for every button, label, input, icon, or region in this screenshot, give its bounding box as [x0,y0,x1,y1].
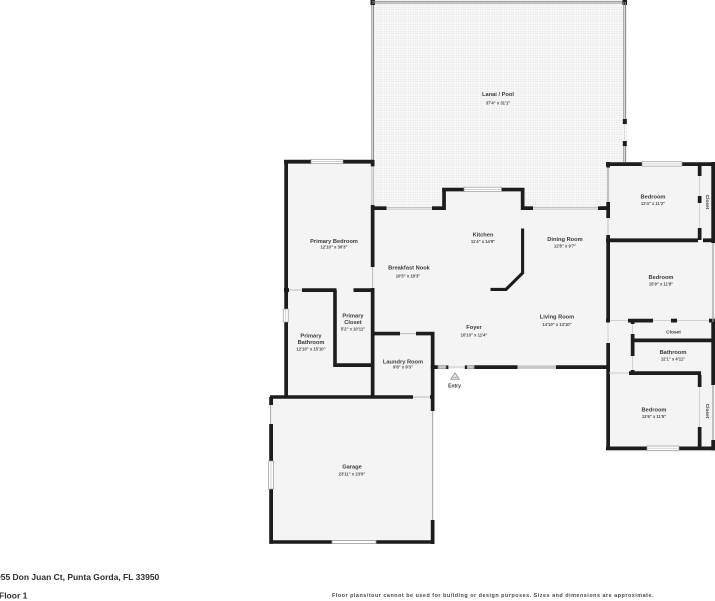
svg-text:Closet: Closet [704,404,710,419]
svg-text:Breakfast Nook: Breakfast Nook [388,266,431,272]
svg-text:Primary: Primary [300,334,322,340]
svg-text:955 Don Juan Ct, Punta Gorda,: 955 Don Juan Ct, Punta Gorda, FL 33950 [0,572,160,582]
svg-text:14'10" x 13'10": 14'10" x 13'10" [542,322,571,327]
svg-text:9'8" x 9'3": 9'8" x 9'3" [393,365,413,370]
svg-text:10'5" x 18'3": 10'5" x 18'3" [396,274,421,279]
svg-text:Bathroom: Bathroom [660,350,687,356]
svg-text:Garage: Garage [342,465,362,471]
svg-text:Floor 1: Floor 1 [0,591,28,601]
svg-text:23'11" x 23'9": 23'11" x 23'9" [339,472,366,477]
svg-text:15'9" x 11'8": 15'9" x 11'8" [649,281,673,286]
svg-text:Closet: Closet [666,330,681,336]
svg-text:5'2" x 10'11": 5'2" x 10'11" [341,327,365,332]
svg-text:Bedroom: Bedroom [641,195,666,201]
svg-text:Closet: Closet [344,320,361,326]
svg-text:Bedroom: Bedroom [642,408,667,414]
svg-text:Entry: Entry [448,384,461,390]
svg-text:Living Room: Living Room [540,315,574,321]
svg-text:12'4" x 11'2": 12'4" x 11'2" [641,201,665,206]
svg-text:13'6" x 11'5": 13'6" x 11'5" [642,414,666,419]
svg-text:Floor plans/tour cannot be use: Floor plans/tour cannot be used for buil… [332,593,654,599]
svg-text:12'10" x 15'10": 12'10" x 15'10" [296,347,325,352]
svg-text:Foyer: Foyer [466,325,482,331]
svg-text:Kitchen: Kitchen [473,233,494,239]
svg-text:37'4" x 31'1": 37'4" x 31'1" [486,101,511,106]
svg-text:11'4" x 14'9": 11'4" x 14'9" [471,239,495,244]
svg-text:Dining Room: Dining Room [547,237,582,243]
svg-text:Lanai / Pool: Lanai / Pool [482,92,514,98]
svg-text:12'1" x 4'11": 12'1" x 4'11" [661,357,685,362]
svg-text:Bathroom: Bathroom [298,340,325,346]
svg-text:12'10" x 30'3": 12'10" x 30'3" [321,245,348,250]
svg-text:Bedroom: Bedroom [649,275,674,281]
svg-text:10'10" x 11'4": 10'10" x 11'4" [461,333,488,338]
svg-text:12'8" x 9'7": 12'8" x 9'7" [554,244,576,249]
svg-text:Primary: Primary [342,314,364,320]
svg-text:Closet: Closet [704,195,710,210]
